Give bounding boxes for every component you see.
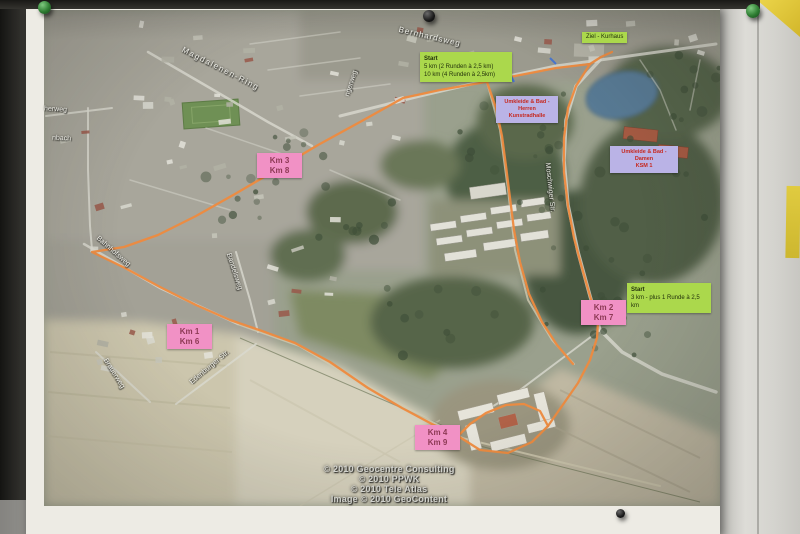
photo-of-pinned-route-map: Bernhardsweg Magdalenen-Ring Moschwiger … — [0, 0, 800, 534]
km-marker-line: Km 1 — [167, 327, 212, 337]
pushpin-green-topleft — [38, 1, 51, 14]
facility-label-line: Umkleide & Bad - Damen — [612, 149, 676, 163]
facility-label-damen: Umkleide & Bad - Damen KSM 1 — [610, 146, 678, 173]
pushpin-black-topcenter — [423, 10, 435, 22]
start-label-line: Start — [424, 55, 508, 63]
km-marker-4-9: Km 4 Km 9 — [415, 425, 460, 450]
km-marker-line: Km 8 — [257, 166, 302, 176]
copyright-line: © 2010 PPWK — [306, 474, 472, 484]
ziel-label: Ziel - Kurhaus — [582, 32, 627, 43]
pushpin-black-bottom — [616, 509, 625, 518]
km-marker-line: Km 2 — [581, 303, 626, 313]
map-copyright: © 2010 Geocentre Consulting © 2010 PPWK … — [306, 464, 472, 504]
facility-label-line: Umkleide & Bad - Herren — [498, 99, 556, 113]
start-label-3km: Start 3 km - plus 1 Runde à 2,5 km — [627, 283, 711, 313]
km-marker-line: Km 4 — [415, 428, 460, 438]
copyright-line: © 2010 Geocentre Consulting — [306, 464, 472, 474]
facility-label-line: KSM 1 — [612, 163, 676, 170]
street-label-partial: herweg — [44, 105, 67, 113]
start-label-main: Start 5 km (2 Runden à 2,5 km) 10 km (4 … — [420, 52, 512, 82]
copyright-line: Image © 2010 GeoContent — [306, 494, 472, 504]
km-marker-line: Km 6 — [167, 337, 212, 347]
km-marker-line: Km 7 — [581, 313, 626, 323]
facility-label-line: Kunstradhalle — [498, 113, 556, 120]
start-label-line: 3 km - plus 1 Runde à 2,5 km — [631, 294, 707, 310]
start-label-line: 10 km (4 Runden à 2,5km) — [424, 71, 508, 79]
km-marker-2-7: Km 2 Km 7 — [581, 300, 626, 325]
copyright-line: © 2010 Tele Atlas — [306, 484, 472, 494]
pushpin-green-topright — [746, 4, 760, 18]
aerial-map-svg — [0, 0, 800, 534]
start-label-line: Start — [631, 286, 707, 294]
km-marker-line: Km 9 — [415, 438, 460, 448]
km-marker-line: Km 3 — [257, 156, 302, 166]
km-marker-3-8: Km 3 Km 8 — [257, 153, 302, 178]
facility-label-herren: Umkleide & Bad - Herren Kunstradhalle — [496, 96, 558, 123]
street-label-partial: nbach — [52, 135, 71, 143]
start-label-line: 5 km (2 Runden à 2,5 km) — [424, 63, 508, 71]
km-marker-1-6: Km 1 Km 6 — [167, 324, 212, 349]
